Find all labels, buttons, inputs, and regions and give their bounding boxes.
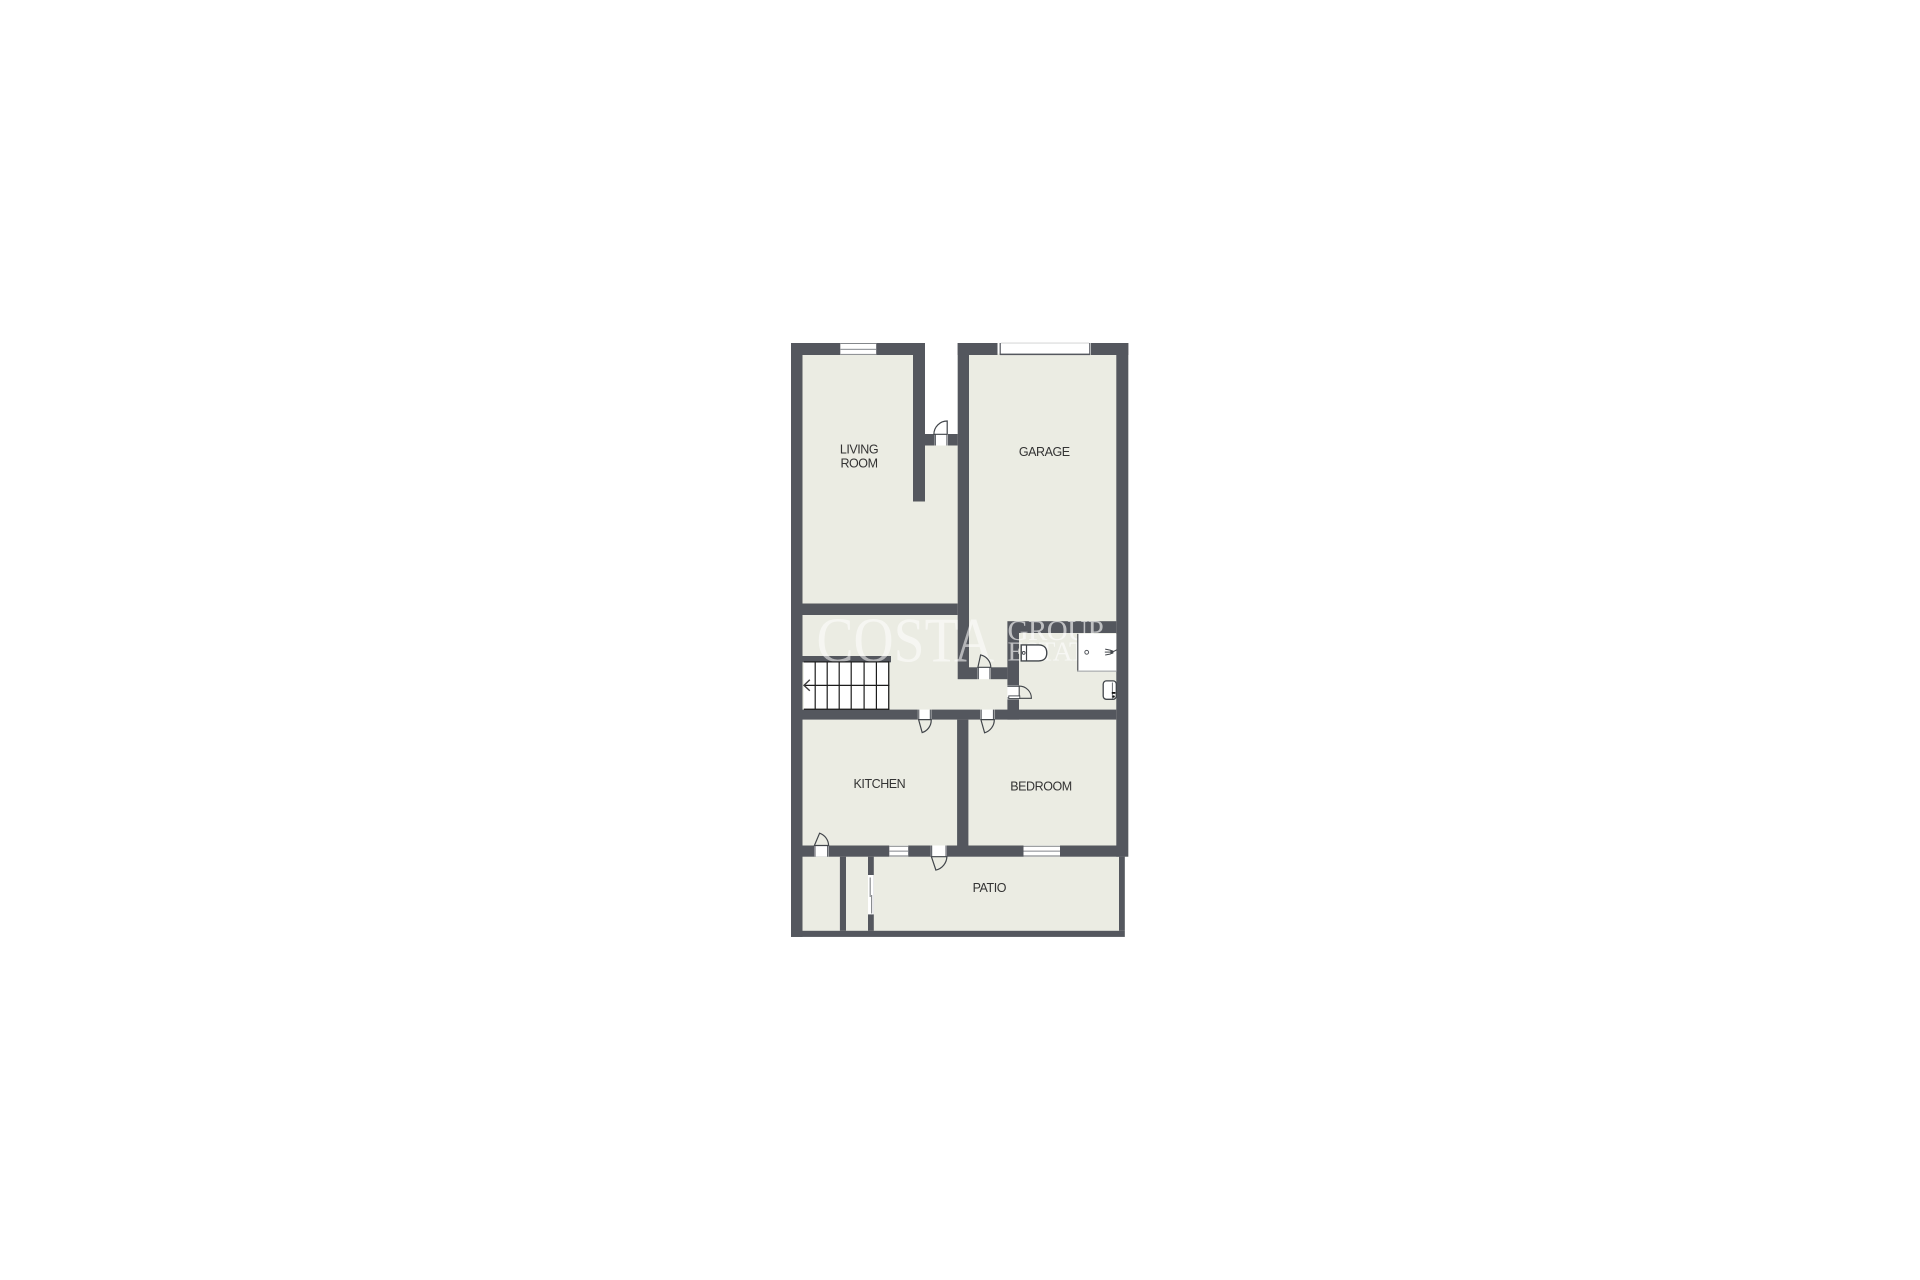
svg-text:PATIO: PATIO (973, 881, 1007, 895)
svg-text:KITCHEN: KITCHEN (854, 777, 906, 791)
svg-text:ROOM: ROOM (840, 457, 877, 471)
svg-text:BEDROOM: BEDROOM (1010, 779, 1071, 793)
svg-text:LIVING: LIVING (840, 443, 878, 457)
svg-text:GARAGE: GARAGE (1019, 445, 1070, 459)
